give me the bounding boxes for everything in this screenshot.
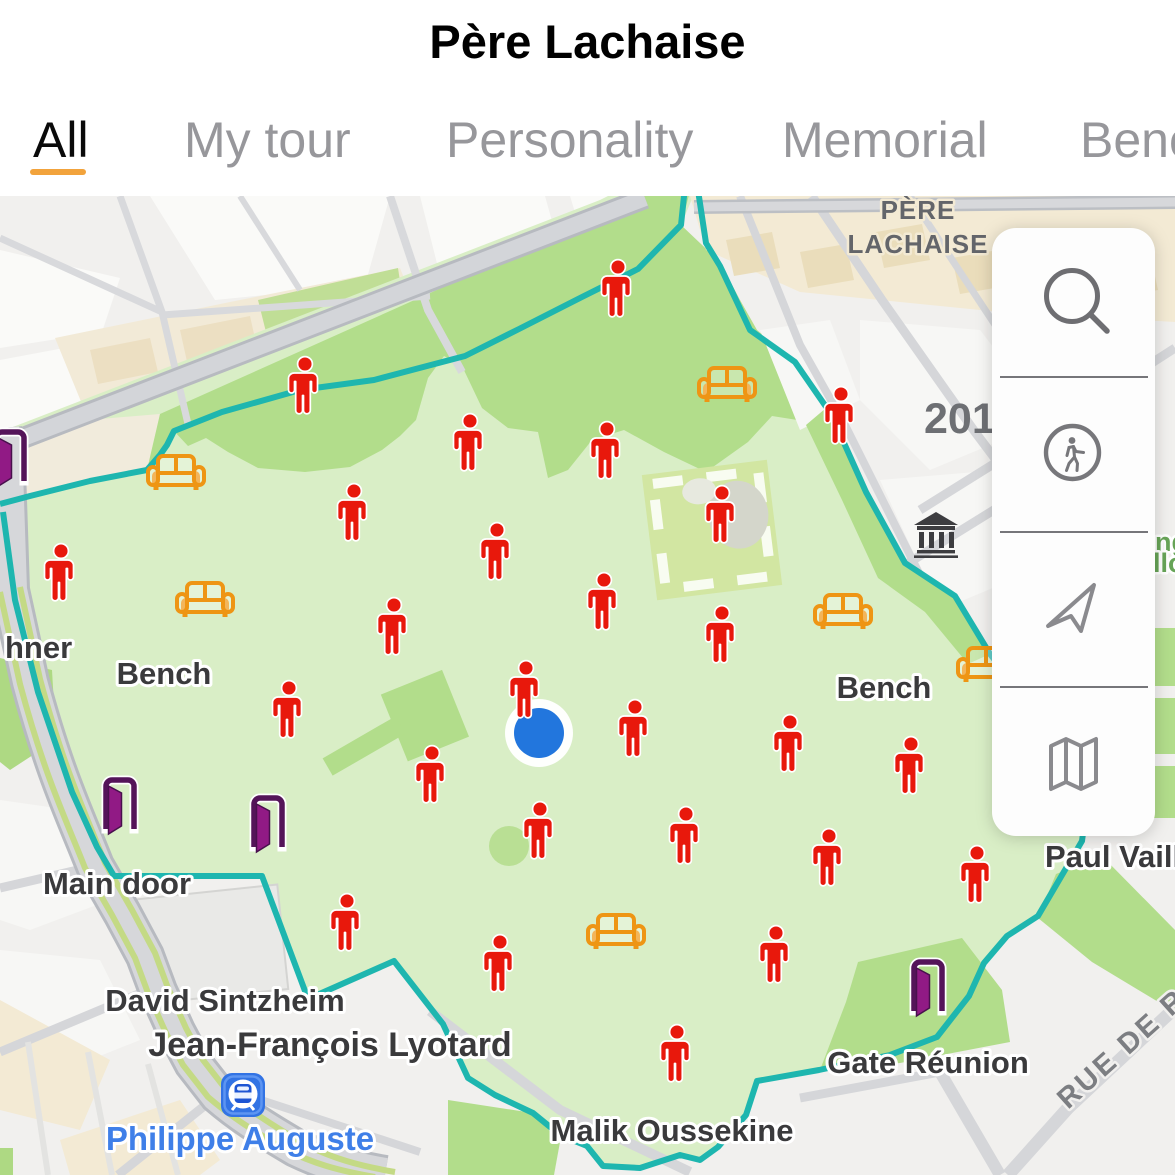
svg-text:Jean-François Lyotard: Jean-François Lyotard xyxy=(148,1026,511,1064)
svg-text:hner: hner xyxy=(5,630,72,665)
svg-text:LACHAISE: LACHAISE xyxy=(848,229,989,259)
svg-text:PÈRE: PÈRE xyxy=(881,196,956,225)
svg-text:Gate Réunion: Gate Réunion xyxy=(827,1045,1029,1080)
svg-text:David Sintzheim: David Sintzheim xyxy=(105,983,344,1018)
svg-text:Paul Vaillant: Paul Vaillant xyxy=(1045,839,1175,874)
svg-text:Bench: Bench xyxy=(117,656,212,691)
svg-text:Main door: Main door xyxy=(43,866,191,901)
svg-text:Philippe Auguste: Philippe Auguste xyxy=(106,1120,374,1157)
svg-text:Malik Oussekine: Malik Oussekine xyxy=(551,1113,794,1148)
svg-text:llo: llo xyxy=(1153,548,1175,578)
svg-text:Bench: Bench xyxy=(837,670,932,705)
